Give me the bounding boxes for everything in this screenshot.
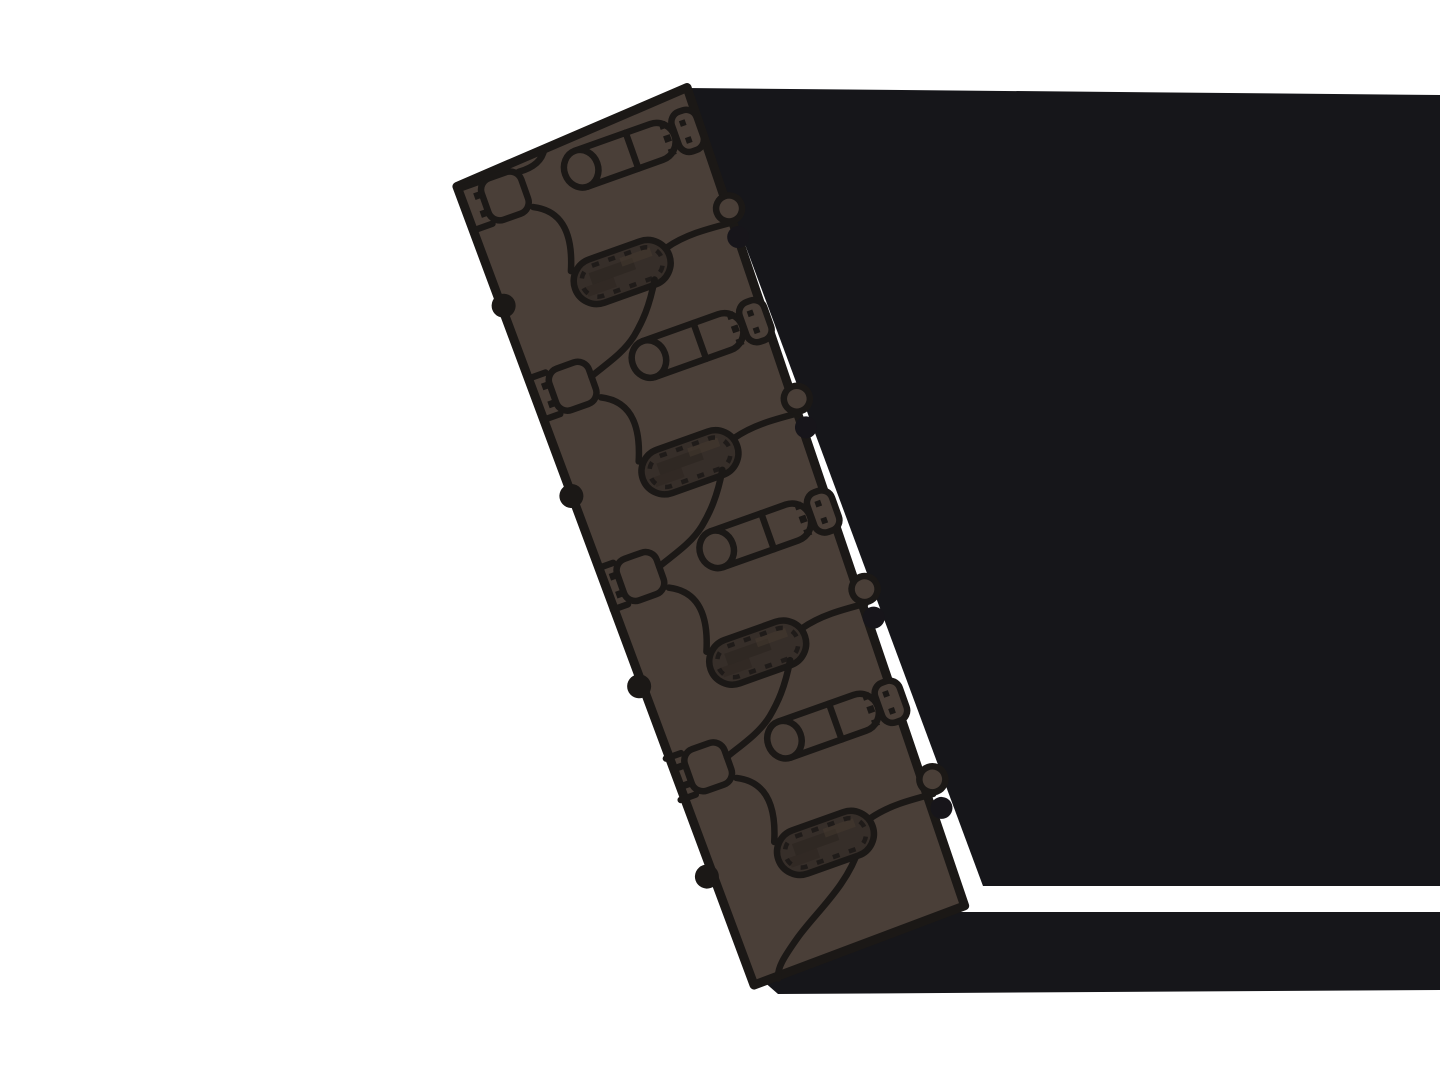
illustration-stage xyxy=(0,0,1440,1080)
chain-strip-illustration xyxy=(0,0,1440,1080)
